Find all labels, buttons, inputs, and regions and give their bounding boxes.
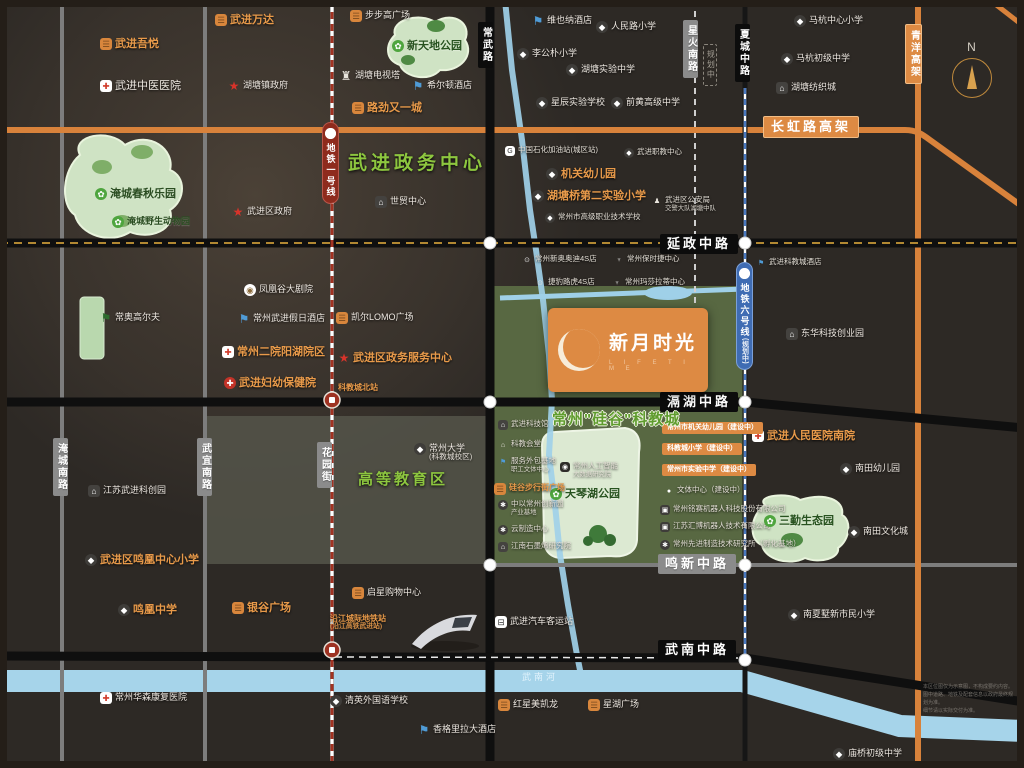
poi-car2: ♆常州玛莎拉蒂中心 (612, 278, 685, 288)
poi-label: 常州玛莎拉蒂中心 (625, 278, 685, 287)
poi-label: 武进汽车客运站 (510, 616, 573, 626)
poi-shop: ☰步步高广场 (350, 10, 410, 22)
poi-label: 武进职教中心 (637, 148, 682, 157)
poi-hospital: ✚常州华森康复医院 (100, 692, 187, 704)
shop-icon: ☰ (336, 312, 348, 324)
poi-label: 科教城小学（建设中） (662, 443, 742, 455)
poi-label: 常州铭赛机器人科技股份有限公司 (673, 505, 786, 514)
poi-label: 科教城北站 (338, 383, 378, 392)
zone-label: 高等教育区 (358, 468, 448, 489)
park-icon: ✿ (392, 40, 404, 52)
poi-building: ⌂江南石墨烯研究院 (498, 542, 571, 552)
poi-hospital: ✚武进中医医院 (100, 80, 181, 93)
poi-gas: G中国石化加油站(城区站) (505, 146, 598, 156)
poi-label: 武进区政务服务中心 (353, 352, 452, 365)
poi-label: 湖塘镇政府 (243, 80, 288, 90)
poi-label: 天琴湖公园 (565, 488, 620, 501)
poi-golf: ⚑常奥高尔夫 (100, 312, 160, 324)
project-tagline: L I F E T I M E (609, 360, 698, 372)
poi-shop: ☰凯尔LOMO广场 (336, 312, 414, 324)
car2-icon: ♆ (612, 278, 622, 288)
poi-building: ⌂世贸中心 (375, 196, 426, 208)
shop-icon: ☰ (232, 602, 244, 614)
poi-star: ★武进区政务服务中心 (338, 352, 452, 365)
gear-icon: ✱ (498, 500, 508, 510)
hotel-icon: ⚑ (756, 258, 766, 268)
police-icon: ♟ (652, 196, 662, 206)
poi-school: ◆武进区鸣凰中心小学 (85, 554, 199, 567)
poi-school: ◆鸣凰中学 (118, 604, 177, 617)
bus-icon: ⊟ (495, 616, 507, 628)
poi-shop: ☰武进万达 (215, 14, 274, 27)
poi-gear: ✱云制造中心 (498, 525, 549, 535)
hotel-icon: ⚑ (498, 457, 508, 467)
school-icon: ◆ (414, 443, 426, 455)
poi-label: 鸣凰中学 (133, 604, 177, 617)
poi-factory: ▣常州铭赛机器人科技股份有限公司 (660, 505, 786, 515)
golf-icon: ⚑ (100, 312, 112, 324)
label-overlay: ☰武进吾悦☰武进万达✚武进中医医院★湖塘镇政府✿淹城春秋乐园✿淹城野生动物园★武… (0, 0, 1024, 768)
poi-label: 常奥高尔夫 (115, 312, 160, 322)
poi-label: 李公朴小学 (532, 48, 577, 58)
metro-logo-icon (739, 268, 750, 279)
poi-label: 庙桥初级中学 (848, 748, 902, 758)
poi-label: 江苏武进科创园 (103, 485, 166, 495)
poi-school: ◆机关幼儿园 (546, 168, 616, 181)
school-icon: ◆ (532, 190, 544, 202)
poi-school: ◆李公朴小学 (517, 48, 577, 60)
road-badge: 长虹路高架 (763, 116, 859, 138)
poi-school: ◆常州市高级职业技术学校 (545, 213, 641, 223)
poi-park: ✿淹城春秋乐园 (95, 188, 176, 201)
metro-logo-icon (325, 128, 336, 139)
map-canvas: ☰武进吾悦☰武进万达✚武进中医医院★湖塘镇政府✿淹城春秋乐园✿淹城野生动物园★武… (0, 0, 1024, 768)
school-icon: ◆ (536, 97, 548, 109)
road-badge: 武南中路 (658, 640, 736, 660)
car-icon: ⊙ (522, 255, 532, 265)
poi-label: 南田文化城 (863, 526, 908, 536)
poi-label: 红星美凯龙 (513, 699, 558, 709)
school-icon: ◆ (566, 64, 578, 76)
poi-home: ⌂科教会堂 (498, 440, 541, 450)
poi-label: 湖塘桥第二实验小学 (547, 190, 646, 203)
poi-shop: ☰星湖广场 (588, 699, 639, 711)
poi-label: 三勤生态园 (779, 515, 834, 528)
poi-label: 科教城北站 (338, 383, 378, 392)
poi-park: ✿三勤生态园 (764, 515, 834, 528)
poi-park: ✿新天地公园 (392, 40, 462, 53)
car-icon: ⊙ (535, 278, 545, 288)
gas-icon: G (505, 146, 515, 156)
poi-label: 星辰实验学校 (551, 97, 605, 107)
poi-label: 常州武进假日酒店 (253, 313, 325, 323)
road-badge: 常武路 (478, 22, 493, 68)
poi-label: 硅谷步行街广场 (509, 483, 565, 492)
ai-icon: ◉ (560, 462, 570, 472)
poi-label: 武南河 (522, 672, 558, 682)
poi-hotel: ⚑香格里拉大酒店 (418, 724, 496, 736)
hotel-icon: ⚑ (532, 15, 544, 27)
school-icon: ◆ (611, 97, 623, 109)
poi-shop: ☰武进吾悦 (100, 38, 159, 51)
poi-school: ◆湖塘实验中学 (566, 64, 635, 76)
poi-label: 湖塘电视塔 (355, 70, 400, 80)
poi-label: 捷豹路虎4S店 (548, 278, 595, 287)
hospital-icon: ✚ (222, 346, 234, 358)
poi-label: 文体中心（建设中） (677, 486, 745, 495)
poi-label: 维也纳酒店 (547, 15, 592, 25)
school-icon: ◆ (840, 463, 852, 475)
road-badge: 地铁六号线(规划中) (736, 262, 753, 370)
dot-icon: ● (664, 486, 674, 496)
poi-park: ✿淹城野生动物园 (112, 216, 190, 228)
poi-label: 武进区鸣凰中心小学 (100, 554, 199, 567)
poi-car: ⊙常州新奥奥迪4S店 (522, 255, 597, 265)
shop-icon: ☰ (498, 699, 510, 711)
poi-label: 人民路小学 (611, 21, 656, 31)
road-badge: 鸣新中路 (658, 554, 736, 574)
poi-school: ◆庙桥初级中学 (833, 748, 902, 760)
poi-police: ♟武进区公安局交警大队湖塘中队 (652, 196, 716, 212)
shop-icon: ☰ (100, 38, 112, 50)
poi-car2: ♆常州保时捷中心 (614, 255, 680, 265)
poi-shop: ☰启星购物中心 (352, 587, 421, 599)
poi-school: ◆南田幼儿园 (840, 463, 900, 475)
poi-hotel: ⚑服务外包基地职工文体中心 (498, 457, 556, 473)
hotel-icon: ⚑ (418, 724, 430, 736)
poi-label: 常州新奥奥迪4S店 (535, 255, 597, 264)
poi-building: ⌂江苏武进科创园 (88, 485, 166, 497)
poi-label: 前黄高级中学 (626, 97, 680, 107)
poi-label: 武进人民医院南院 (767, 430, 855, 443)
poi-star: ★湖塘镇政府 (228, 80, 288, 92)
poi-label: 淹城野生动物园 (127, 216, 190, 226)
poi-label: 常州市实验中学（建设中） (662, 464, 756, 476)
road-badge: 武宜南路 (197, 438, 212, 496)
poi-school: ◆湖塘桥第二实验小学 (532, 190, 646, 203)
poi-building: ⌂湖塘纺织城 (776, 82, 836, 94)
poi-label: 武进区公安局交警大队湖塘中队 (665, 196, 716, 212)
poi-label: 江苏汇博机器人技术有限公司 (673, 522, 771, 531)
poi-school: ◆马杭中心小学 (794, 15, 863, 27)
poi-label: 常州先进制造技术研究所（孵化基地） (673, 540, 801, 549)
road-badge: 淹城南路 (53, 438, 68, 496)
poi-star: ★武进区政府 (232, 206, 292, 218)
tower-icon: ♜ (340, 70, 352, 82)
poi-label: 启星购物中心 (367, 587, 421, 597)
poi-shop: ☰银谷广场 (232, 602, 291, 615)
poi-label: 清英外国语学校 (345, 695, 408, 705)
school-icon: ◆ (788, 609, 800, 621)
poi-label: 南夏墅新市民小学 (803, 609, 875, 619)
poi-label: 机关幼儿园 (561, 168, 616, 181)
park-icon: ✿ (95, 188, 107, 200)
poi-label: 武进万达 (230, 14, 274, 27)
poi-label: 马杭中心小学 (809, 15, 863, 25)
school-icon: ◆ (624, 148, 634, 158)
road-badge: 青洋高架 (905, 24, 922, 84)
shop-icon: ☰ (494, 483, 506, 495)
poi-shop: ☰红星美凯龙 (498, 699, 558, 711)
poi-school: ◆常州大学(科教城校区) (414, 443, 472, 462)
disclaimer: 本区位图仅为示意图，不构成要约内容。 图中道路、地铁及配套信息以政府最终规划为准… (923, 683, 1017, 715)
crescent-moon-logo (558, 329, 600, 371)
poi-school: ◆清英外国语学校 (330, 695, 408, 707)
poi-school: ◆南田文化城 (848, 526, 908, 538)
star-icon: ★ (232, 206, 244, 218)
school-icon: ◆ (848, 526, 860, 538)
poi-label: 世贸中心 (390, 196, 426, 206)
poi-school: ◆武进职教中心 (624, 148, 682, 158)
star-icon: ★ (338, 352, 350, 364)
poi-hospital2: ✚武进妇幼保健院 (224, 377, 316, 390)
poi-hotel: ⚑希尔顿酒店 (412, 80, 472, 92)
poi-hotel: ⚑常州武进假日酒店 (238, 313, 325, 325)
hotel-icon: ⚑ (238, 313, 250, 325)
hotel-icon: ⚑ (412, 80, 424, 92)
poi-label: 武进科教城酒店 (769, 258, 822, 267)
road-badge: 星火南路 (683, 20, 698, 78)
hospital-icon: ✚ (100, 80, 112, 92)
poi-hotel: ⚑维也纳酒店 (532, 15, 592, 27)
building-icon: ⌂ (786, 328, 798, 340)
building-icon: ⌂ (498, 542, 508, 552)
poi-shop: ☰路劲又一城 (352, 102, 422, 115)
factory-icon: ▣ (660, 505, 670, 515)
poi-building: ⌂东华科技创业园 (786, 328, 864, 340)
poi-hotel: ⚑武进科教城酒店 (756, 258, 822, 268)
park-icon: ✿ (764, 515, 776, 527)
poi-label: 常州市实验中学（建设中） (662, 464, 756, 476)
gear-icon: ✱ (498, 525, 508, 535)
poi-label: 沿江城际地铁站(沿江高铁武进站) (330, 614, 386, 631)
poi-school: ◆南夏墅新市民小学 (788, 609, 875, 621)
poi-label: 武进中医医院 (115, 80, 181, 93)
compass-north-label: N (948, 40, 996, 54)
compass-needle-icon (967, 65, 977, 89)
poi-label: 武进科技馆 (511, 420, 549, 429)
poi-label: 武进区政府 (247, 206, 292, 216)
shop-icon: ☰ (352, 102, 364, 114)
school-icon: ◆ (517, 48, 529, 60)
poi-tower: ♜湖塘电视塔 (340, 70, 400, 82)
school-icon: ◆ (545, 213, 555, 223)
car2-icon: ♆ (614, 255, 624, 265)
school-icon: ◆ (596, 21, 608, 33)
poi-label: 中以常州创新园产业基地 (511, 500, 564, 516)
poi-label: 路劲又一城 (367, 102, 422, 115)
compass: N (948, 40, 996, 98)
project-card: 新月时光 L I F E T I M E (548, 308, 708, 392)
poi-label: 云制造中心 (511, 525, 549, 534)
factory-icon: ▣ (660, 522, 670, 532)
poi-shop: ☰硅谷步行街广场 (494, 483, 565, 495)
hospital2-icon: ✚ (224, 377, 236, 389)
shop-icon: ☰ (215, 14, 227, 26)
poi-label: 武南河 (522, 672, 558, 682)
school-icon: ◆ (85, 554, 97, 566)
poi-label: 常州保时捷中心 (627, 255, 680, 264)
school-icon: ◆ (833, 748, 845, 760)
poi-label: 凤凰谷大剧院 (259, 284, 313, 294)
poi-ai: ◉常州人工智能大数据研究院 (560, 462, 618, 478)
road-badge: 花园街 (317, 442, 332, 488)
poi-gear: ✱中以常州创新园产业基地 (498, 500, 564, 516)
poi-gear: ✱常州先进制造技术研究所（孵化基地） (660, 540, 801, 550)
road-badge: 夏城中路 (735, 24, 750, 82)
poi-label: 中国石化加油站(城区站) (518, 146, 598, 155)
poi-label: 淹城春秋乐园 (110, 188, 176, 201)
poi-label: 银谷广场 (247, 602, 291, 615)
hospital-icon: ✚ (100, 692, 112, 704)
zone-label: 武进政务中心 (348, 148, 486, 175)
poi-school: ◆人民路小学 (596, 21, 656, 33)
poi-label: 新天地公园 (407, 40, 462, 53)
poi-label: 科教城小学（建设中） (662, 443, 742, 455)
poi-car: ⊙捷豹路虎4S店 (535, 278, 595, 288)
poi-label: 江南石墨烯研究院 (511, 542, 571, 551)
poi-hospital: ✚武进人民医院南院 (752, 430, 855, 443)
park-icon: ✿ (112, 216, 124, 228)
poi-label: 步步高广场 (365, 10, 410, 20)
poi-label: 常州市高级职业技术学校 (558, 213, 641, 222)
theater-icon: ◉ (244, 284, 256, 296)
poi-label: 常州二院阳湖院区 (237, 346, 325, 359)
road-badge: 规划中 (703, 44, 717, 86)
poi-label: 东华科技创业园 (801, 328, 864, 338)
poi-label: 常州华森康复医院 (115, 692, 187, 702)
road-badge: 延政中路 (660, 234, 738, 254)
poi-theater: ◉凤凰谷大剧院 (244, 284, 313, 296)
project-name: 新月时光 (609, 328, 698, 355)
shop-icon: ☰ (350, 10, 362, 22)
poi-school: ◆前黄高级中学 (611, 97, 680, 109)
poi-label: 希尔顿酒店 (427, 80, 472, 90)
school-icon: ◆ (781, 53, 793, 65)
poi-label: 常州人工智能大数据研究院 (573, 462, 618, 478)
shop-icon: ☰ (588, 699, 600, 711)
building-icon: ⌂ (498, 420, 508, 430)
poi-label: 湖塘纺织城 (791, 82, 836, 92)
zone-label: 常州"硅谷"科教城 (552, 408, 680, 429)
poi-label: 武进吾悦 (115, 38, 159, 51)
poi-label: 湖塘实验中学 (581, 64, 635, 74)
poi-label: 香格里拉大酒店 (433, 724, 496, 734)
poi-label: 武进妇幼保健院 (239, 377, 316, 390)
poi-building: ⌂武进科技馆 (498, 420, 549, 430)
poi-hospital: ✚常州二院阳湖院区 (222, 346, 325, 359)
poi-school: ◆马杭初级中学 (781, 53, 850, 65)
poi-school: ◆星辰实验学校 (536, 97, 605, 109)
poi-label: 沿江城际地铁站(沿江高铁武进站) (330, 614, 386, 631)
compass-ring (952, 58, 992, 98)
poi-label: 星湖广场 (603, 699, 639, 709)
building-icon: ⌂ (88, 485, 100, 497)
school-icon: ◆ (330, 695, 342, 707)
star-icon: ★ (228, 80, 240, 92)
poi-label: 南田幼儿园 (855, 463, 900, 473)
home-icon: ⌂ (498, 440, 508, 450)
building-icon: ⌂ (776, 82, 788, 94)
road-badge: 地铁一号线 (322, 122, 339, 204)
shop-icon: ☰ (352, 587, 364, 599)
poi-label: 服务外包基地职工文体中心 (511, 457, 556, 473)
poi-label: 科教会堂 (511, 440, 541, 449)
poi-label: 凯尔LOMO广场 (351, 312, 414, 322)
school-icon: ◆ (118, 604, 130, 616)
gear-icon: ✱ (660, 540, 670, 550)
building-icon: ⌂ (375, 196, 387, 208)
school-icon: ◆ (794, 15, 806, 27)
poi-dot: ●文体中心（建设中） (664, 486, 745, 496)
poi-label: 马杭初级中学 (796, 53, 850, 63)
poi-factory: ▣江苏汇博机器人技术有限公司 (660, 522, 771, 532)
poi-bus: ⊟武进汽车客运站 (495, 616, 573, 628)
school-icon: ◆ (546, 168, 558, 180)
poi-label: 常州大学(科教城校区) (429, 443, 472, 462)
